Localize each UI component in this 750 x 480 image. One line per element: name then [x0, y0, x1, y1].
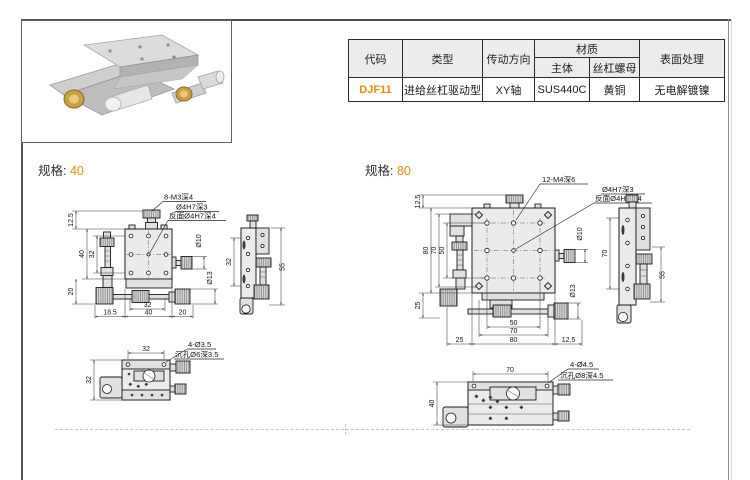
col-header-surface: 表面处理: [640, 40, 725, 78]
spec80-dim-12-5b: 12.5: [562, 337, 576, 344]
spec40-base-dim-width: 32: [142, 346, 150, 353]
spec40-callout-center-2: 反面Ø4H7深4: [169, 211, 216, 221]
cell-direction: XY轴: [483, 78, 535, 102]
spec40-bottom-view: 32 32 4-Ø3.5 沉孔Ø6深3.5: [86, 340, 224, 400]
spec80-dim-12-5: 12.5: [415, 195, 422, 209]
spec40-section-label: 规格: 40: [38, 160, 84, 179]
cell-code: DJF11: [349, 78, 403, 102]
spec40-front-view: [96, 210, 192, 304]
spec40-label-value: 40: [70, 164, 84, 178]
col-header-material: 材质: [535, 40, 640, 58]
spec40-bottom-knob: [175, 289, 190, 304]
spec80-bottom-knob: [554, 303, 568, 319]
spec40-side-view: 32 55: [226, 215, 287, 314]
spec40-dim-32v: 32: [89, 251, 96, 259]
spec80-side-dim-55: 55: [660, 271, 667, 279]
spec80-dim-80b: 80: [510, 337, 518, 344]
spec40-callout-base-1: 4-Ø3.5: [188, 340, 211, 349]
spec80-dim-80: 80: [423, 247, 430, 255]
col-header-code: 代码: [349, 40, 403, 78]
right-page-border-inner: [731, 19, 732, 480]
spec80-drawing: 12-M4深6 Ø4H7深3 反面Ø4H7深4 12.5 80 70 50 25: [390, 170, 725, 435]
col-header-material-body: 主体: [535, 58, 590, 78]
spec40-dim-20v: 20: [68, 288, 75, 296]
spec40-dim-dia13: Ø13: [207, 271, 214, 284]
spec80-callout-base-2: 沉孔Ø8深4.5: [560, 371, 603, 380]
spec80-callout-center-1: Ø4H7深3: [602, 185, 634, 194]
cell-surface: 无电解镀镍: [640, 78, 725, 102]
spec40-left-knob: [96, 288, 113, 305]
col-header-material-nut: 丝杠螺母: [590, 58, 640, 78]
spec40-right-knob: [181, 257, 192, 270]
spec40-dim-20b: 20: [179, 310, 187, 317]
spec80-side-view: 70 55: [602, 195, 667, 323]
page-separator-dashed-line: [55, 429, 690, 430]
spec40-dim-32b: 32: [144, 302, 152, 309]
spec80-callout-top: 12-M4深6: [542, 175, 575, 184]
spec40-callout-base-2: 沉孔Ø6深3.5: [175, 350, 218, 359]
spec40-dim-12-5: 12.5: [68, 213, 75, 227]
right-page-border: [728, 19, 729, 480]
table-row: DJF11 进给丝杠驱动型 XY轴 SUS440C 黄铜 无电解镀镍: [349, 78, 725, 102]
cell-type: 进给丝杠驱动型: [403, 78, 483, 102]
spec80-dim-70b: 70: [510, 328, 518, 335]
spec80-side-dim-70: 70: [602, 250, 609, 258]
spec-table: 代码 类型 传动方向 材质 表面处理 主体 丝杠螺母 DJF11 进给丝杠驱动型…: [348, 39, 725, 102]
center-fold-mark: [345, 424, 346, 435]
spec80-dim-50v: 50: [439, 247, 446, 255]
spec80-base-dim-width: 70: [506, 367, 514, 374]
spec80-dim-dia10: Ø10: [577, 227, 584, 240]
cell-material-body: SUS440C: [535, 78, 590, 102]
spec80-left-knob: [440, 289, 457, 306]
col-header-type: 类型: [403, 40, 483, 78]
spec80-callout-base-1: 4-Ø4.5: [570, 360, 593, 369]
spec80-top-knob: [506, 195, 523, 203]
catalog-page: 代码 类型 传动方向 材质 表面处理 主体 丝杠螺母 DJF11 进给丝杠驱动型…: [0, 0, 750, 480]
spec40-top-knob: [143, 210, 160, 218]
spec80-base-dim-height: 40: [429, 400, 436, 408]
spec80-dim-25b: 25: [456, 337, 464, 344]
spec40-callout-top: 8-M3深4: [164, 193, 193, 202]
spec40-dim-40b: 40: [145, 310, 153, 317]
spec40-side-dim-55: 55: [280, 263, 287, 271]
spec40-base-dim-height: 32: [86, 376, 93, 384]
spec40-dim-40: 40: [79, 250, 86, 258]
spec80-right-knob: [564, 250, 575, 263]
spec80-dim-25v: 25: [415, 302, 422, 310]
spec40-callout-center-1: Ø4H7深3: [176, 203, 208, 212]
spec80-dim-70v: 70: [431, 247, 438, 255]
col-header-direction: 传动方向: [483, 40, 535, 78]
product-photo-frame: [21, 20, 232, 143]
spec40-side-dim-32: 32: [226, 258, 233, 266]
cell-material-nut: 黄铜: [590, 78, 640, 102]
spec40-label-text: 规格:: [38, 164, 66, 178]
spec80-dim-50b: 50: [510, 320, 518, 327]
product-photo-illustration: [22, 21, 231, 142]
spec40-dim-18-5: 18.5: [103, 310, 117, 317]
spec80-dim-dia13: Ø13: [570, 284, 577, 297]
spec40-drawing: 8-M3深4 Ø4H7深3 反面Ø4H7深4 12.5 40 32 20 32: [30, 185, 320, 440]
spec40-dim-dia10: Ø10: [196, 234, 203, 247]
spec80-bottom-view: 70 40 4-Ø4.5 沉孔Ø8深4.5: [429, 360, 613, 427]
